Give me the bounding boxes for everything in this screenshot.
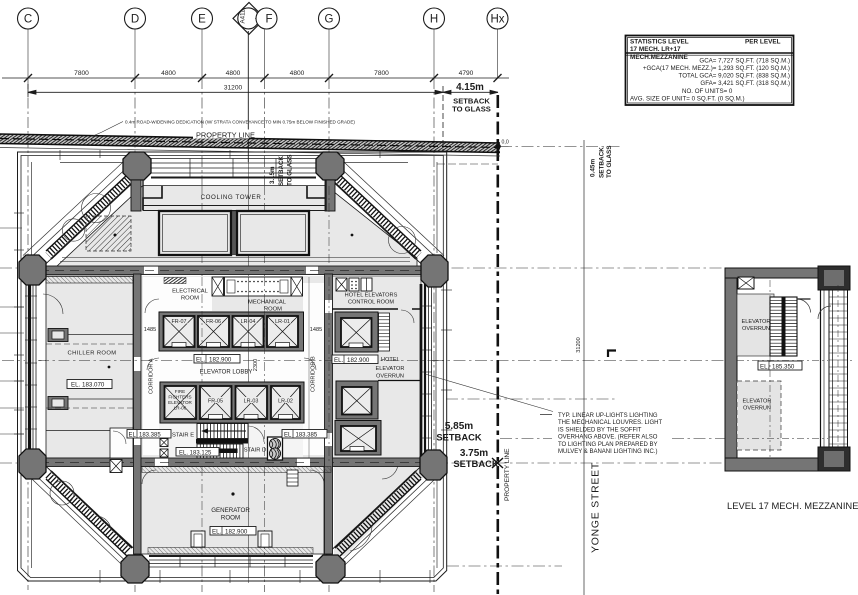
svg-text:C: C [24, 14, 32, 26]
svg-text:7800: 7800 [74, 70, 89, 77]
svg-text:TO GLASS: TO GLASS [287, 154, 294, 186]
svg-text:4800: 4800 [226, 70, 241, 77]
svg-text:LR-01: LR-01 [275, 319, 290, 325]
svg-text:D: D [131, 14, 139, 26]
svg-text:SETBACK: SETBACK [436, 432, 482, 443]
svg-text:4800: 4800 [161, 70, 176, 77]
svg-text:FR-07: FR-07 [172, 319, 187, 325]
svg-text:3.15m: 3.15m [269, 166, 276, 184]
svg-text:TO GLASS: TO GLASS [606, 145, 613, 178]
svg-text:STATISTICS LEVEL: STATISTICS LEVEL [630, 39, 689, 46]
svg-text:LEVEL 17 MECH. MEZZANINE: LEVEL 17 MECH. MEZZANINE [727, 500, 858, 511]
svg-text:OVERHANG ABOVE. (REFER AL: OVERHANG ABOVE. (REFER ALSO [558, 435, 658, 441]
svg-text:IS SHIELDED BY THE SOFFIT: IS SHIELDED BY THE SOFFIT [558, 427, 642, 433]
svg-text:AVG. SIZE OF UNIT= 0 SQ.: AVG. SIZE OF UNIT= 0 SQ.FT. (0 SQ.M.) [630, 96, 745, 103]
svg-text:ELECTRICAL: ELECTRICAL [172, 289, 209, 295]
svg-text:183.385: 183.385 [139, 433, 161, 439]
svg-text:TO LIGHTING PLAN PREPARED: TO LIGHTING PLAN PREPARED BY [558, 442, 657, 448]
svg-text:ELEVATOR LOBBY: ELEVATOR LOBBY [200, 370, 253, 376]
svg-text:182.900: 182.900 [225, 529, 248, 536]
svg-text:NO. OF UNITS= 0: NO. OF UNITS= 0 [682, 88, 733, 95]
svg-text:G: G [325, 14, 334, 26]
svg-text:PROPERTY LINE: PROPERTY LINE [504, 448, 511, 501]
svg-text:THE MECHANICAL LOUVRES. L: THE MECHANICAL LOUVRES. LIGHT [558, 420, 662, 426]
svg-text:OVERRUN: OVERRUN [376, 374, 404, 380]
svg-text:MECHANICAL: MECHANICAL [248, 300, 287, 306]
svg-text:FIRE: FIRE [175, 389, 185, 394]
svg-text:FR-06: FR-06 [206, 319, 221, 325]
svg-text:SETBACK: SETBACK [278, 156, 285, 186]
svg-text:MULVEY & BANANI LIGHTING I: MULVEY & BANANI LIGHTING INC.) [558, 449, 657, 455]
svg-text:1485: 1485 [310, 327, 322, 333]
svg-text:TOTAL GCA= 9,020 SQ.FT. (8: TOTAL GCA= 9,020 SQ.FT. (838 SQ.M.) [679, 73, 790, 80]
svg-text:SETBACK: SETBACK [453, 458, 499, 469]
svg-text:SETBACK: SETBACK [599, 147, 606, 178]
svg-text:STAIR E: STAIR E [172, 433, 194, 439]
svg-text:185.350: 185.350 [772, 363, 795, 370]
svg-text:4.15m: 4.15m [456, 82, 484, 93]
svg-text:ELEVATOR: ELEVATOR [376, 366, 405, 372]
svg-text:5.85m: 5.85m [445, 421, 473, 432]
svg-text:182.900: 182.900 [347, 357, 370, 364]
svg-text:PER LEVEL: PER LEVEL [745, 39, 781, 46]
svg-text:ROOM: ROOM [181, 296, 199, 302]
svg-text:0,0: 0,0 [502, 140, 509, 146]
svg-text:CONTROL ROOM: CONTROL ROOM [348, 300, 394, 306]
svg-text:TYP. LINEAR UP-LIGHTS LIGHT: TYP. LINEAR UP-LIGHTS LIGHTING [558, 413, 658, 419]
svg-text:183.385: 183.385 [296, 433, 318, 439]
svg-text:Hx: Hx [490, 14, 504, 26]
svg-text:EL.: EL. [196, 357, 206, 364]
svg-text:H: H [430, 14, 438, 26]
svg-text:1485: 1485 [144, 327, 156, 333]
svg-text:GENERATOR: GENERATOR [211, 507, 250, 514]
svg-text:STAIR D: STAIR D [244, 448, 266, 454]
svg-text:LR-04: LR-04 [241, 319, 256, 325]
svg-text:0.4m ROAD-WIDENING DEDICATION: 0.4m ROAD-WIDENING DEDICATION (W/ STRATA… [125, 120, 355, 125]
svg-text:31200: 31200 [224, 85, 243, 92]
svg-text:PROPERTY LINE: PROPERTY LINE [196, 131, 255, 140]
svg-text:OVERRUN: OVERRUN [743, 406, 771, 412]
svg-text:17 MECH. LR+17: 17 MECH. LR+17 [630, 46, 681, 53]
svg-text:EL. 183.070: EL. 183.070 [71, 382, 105, 389]
svg-text:ELEVATOR: ELEVATOR [742, 319, 771, 325]
svg-text:E: E [198, 14, 206, 26]
svg-text:31200: 31200 [576, 337, 582, 353]
svg-text:4790: 4790 [459, 70, 474, 77]
svg-text:CORRIDOR A: CORRIDOR A [149, 358, 155, 394]
svg-text:HOTEL ELEVATORS: HOTEL ELEVATORS [345, 293, 398, 299]
svg-text:4800: 4800 [290, 70, 305, 77]
svg-text:COOLING TOWER: COOLING TOWER [201, 194, 262, 201]
svg-text:F: F [265, 14, 272, 26]
svg-text:OVERRUN: OVERRUN [742, 326, 770, 332]
svg-text:7800: 7800 [374, 70, 389, 77]
svg-text:EL. 183.125: EL. 183.125 [179, 451, 212, 457]
svg-text:ELEVATOR: ELEVATOR [743, 399, 772, 405]
svg-text:+GCA(17 MECH. MEZZ.)= 1,293: +GCA(17 MECH. MEZZ.)= 1,293 SQ.FT. (120 … [643, 65, 790, 72]
svg-text:MECH.MEZZANINE: MECH.MEZZANINE [630, 54, 689, 61]
svg-text:HOTEL: HOTEL [381, 357, 400, 363]
svg-text:TO GLASS: TO GLASS [452, 105, 491, 114]
svg-text:EL.: EL. [334, 357, 344, 364]
svg-text:EL.: EL. [760, 363, 770, 370]
svg-text:LR-02: LR-02 [278, 398, 293, 404]
svg-text:FIGHTERS: FIGHTERS [168, 395, 191, 400]
svg-text:ELEVATOR: ELEVATOR [168, 400, 192, 405]
svg-text:CORRIDOR B: CORRIDOR B [311, 356, 317, 392]
svg-text:0.45m: 0.45m [590, 159, 597, 177]
svg-text:GCA= 7,727 SQ.FT. (718 SQ.: GCA= 7,727 SQ.FT. (718 SQ.M.) [699, 58, 790, 65]
svg-text:A411: A411 [240, 9, 247, 24]
svg-text:LR-03: LR-03 [244, 398, 259, 404]
svg-text:EL: EL [129, 433, 137, 439]
svg-text:YONGE STREET: YONGE STREET [591, 462, 602, 553]
svg-text:EL: EL [284, 433, 292, 439]
svg-text:EL.: EL. [212, 529, 222, 536]
svg-text:FR-05: FR-05 [208, 398, 223, 404]
svg-text:182.900: 182.900 [209, 357, 232, 364]
svg-text:GFA= 3,421 SQ.FT. (318 SQ.: GFA= 3,421 SQ.FT. (318 SQ.M.) [700, 80, 790, 87]
svg-text:LR-06: LR-06 [174, 406, 187, 411]
svg-text:ROOM: ROOM [221, 515, 240, 522]
svg-text:CHILLER ROOM: CHILLER ROOM [68, 351, 117, 357]
